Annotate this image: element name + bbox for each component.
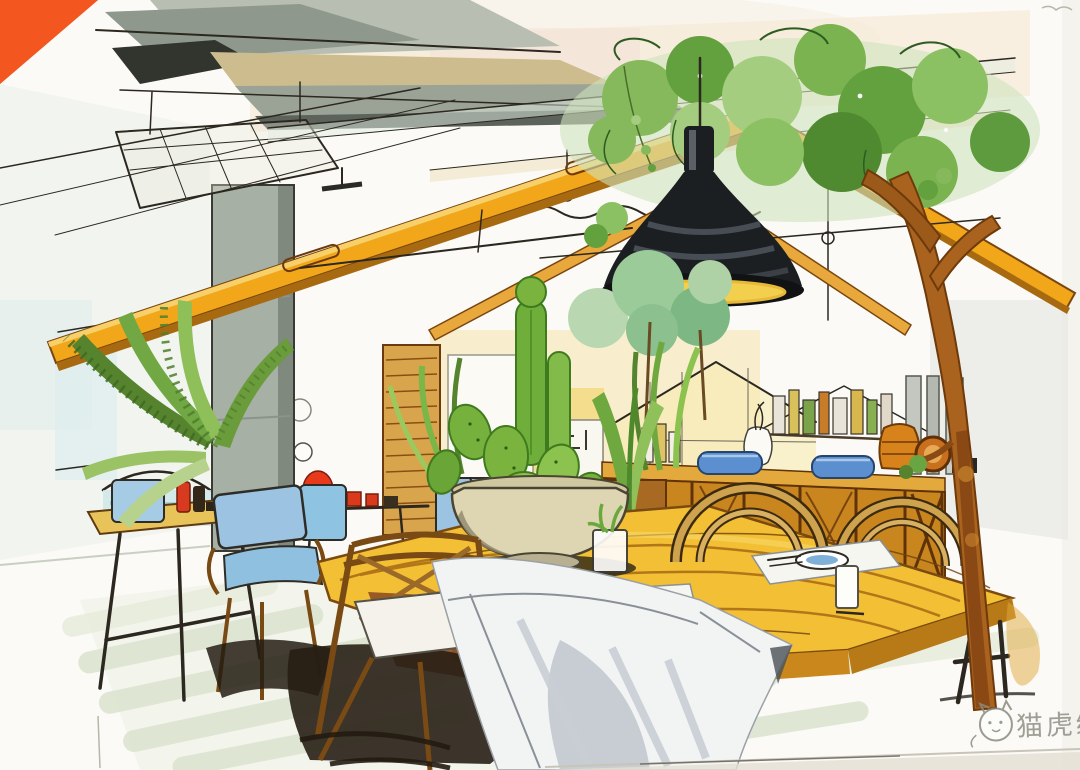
red-bottle xyxy=(177,482,190,512)
wall-mirror xyxy=(294,443,312,461)
dark-bottle xyxy=(193,486,205,512)
white-cup xyxy=(836,566,858,608)
photo-of-marker-sketch: 猫虎绘 xyxy=(0,0,1080,770)
marker-sketch-restaurant-interior: 猫虎绘 xyxy=(0,0,1080,770)
watermark-text: 猫虎绘 xyxy=(1016,709,1080,743)
glass-planter xyxy=(593,530,627,572)
